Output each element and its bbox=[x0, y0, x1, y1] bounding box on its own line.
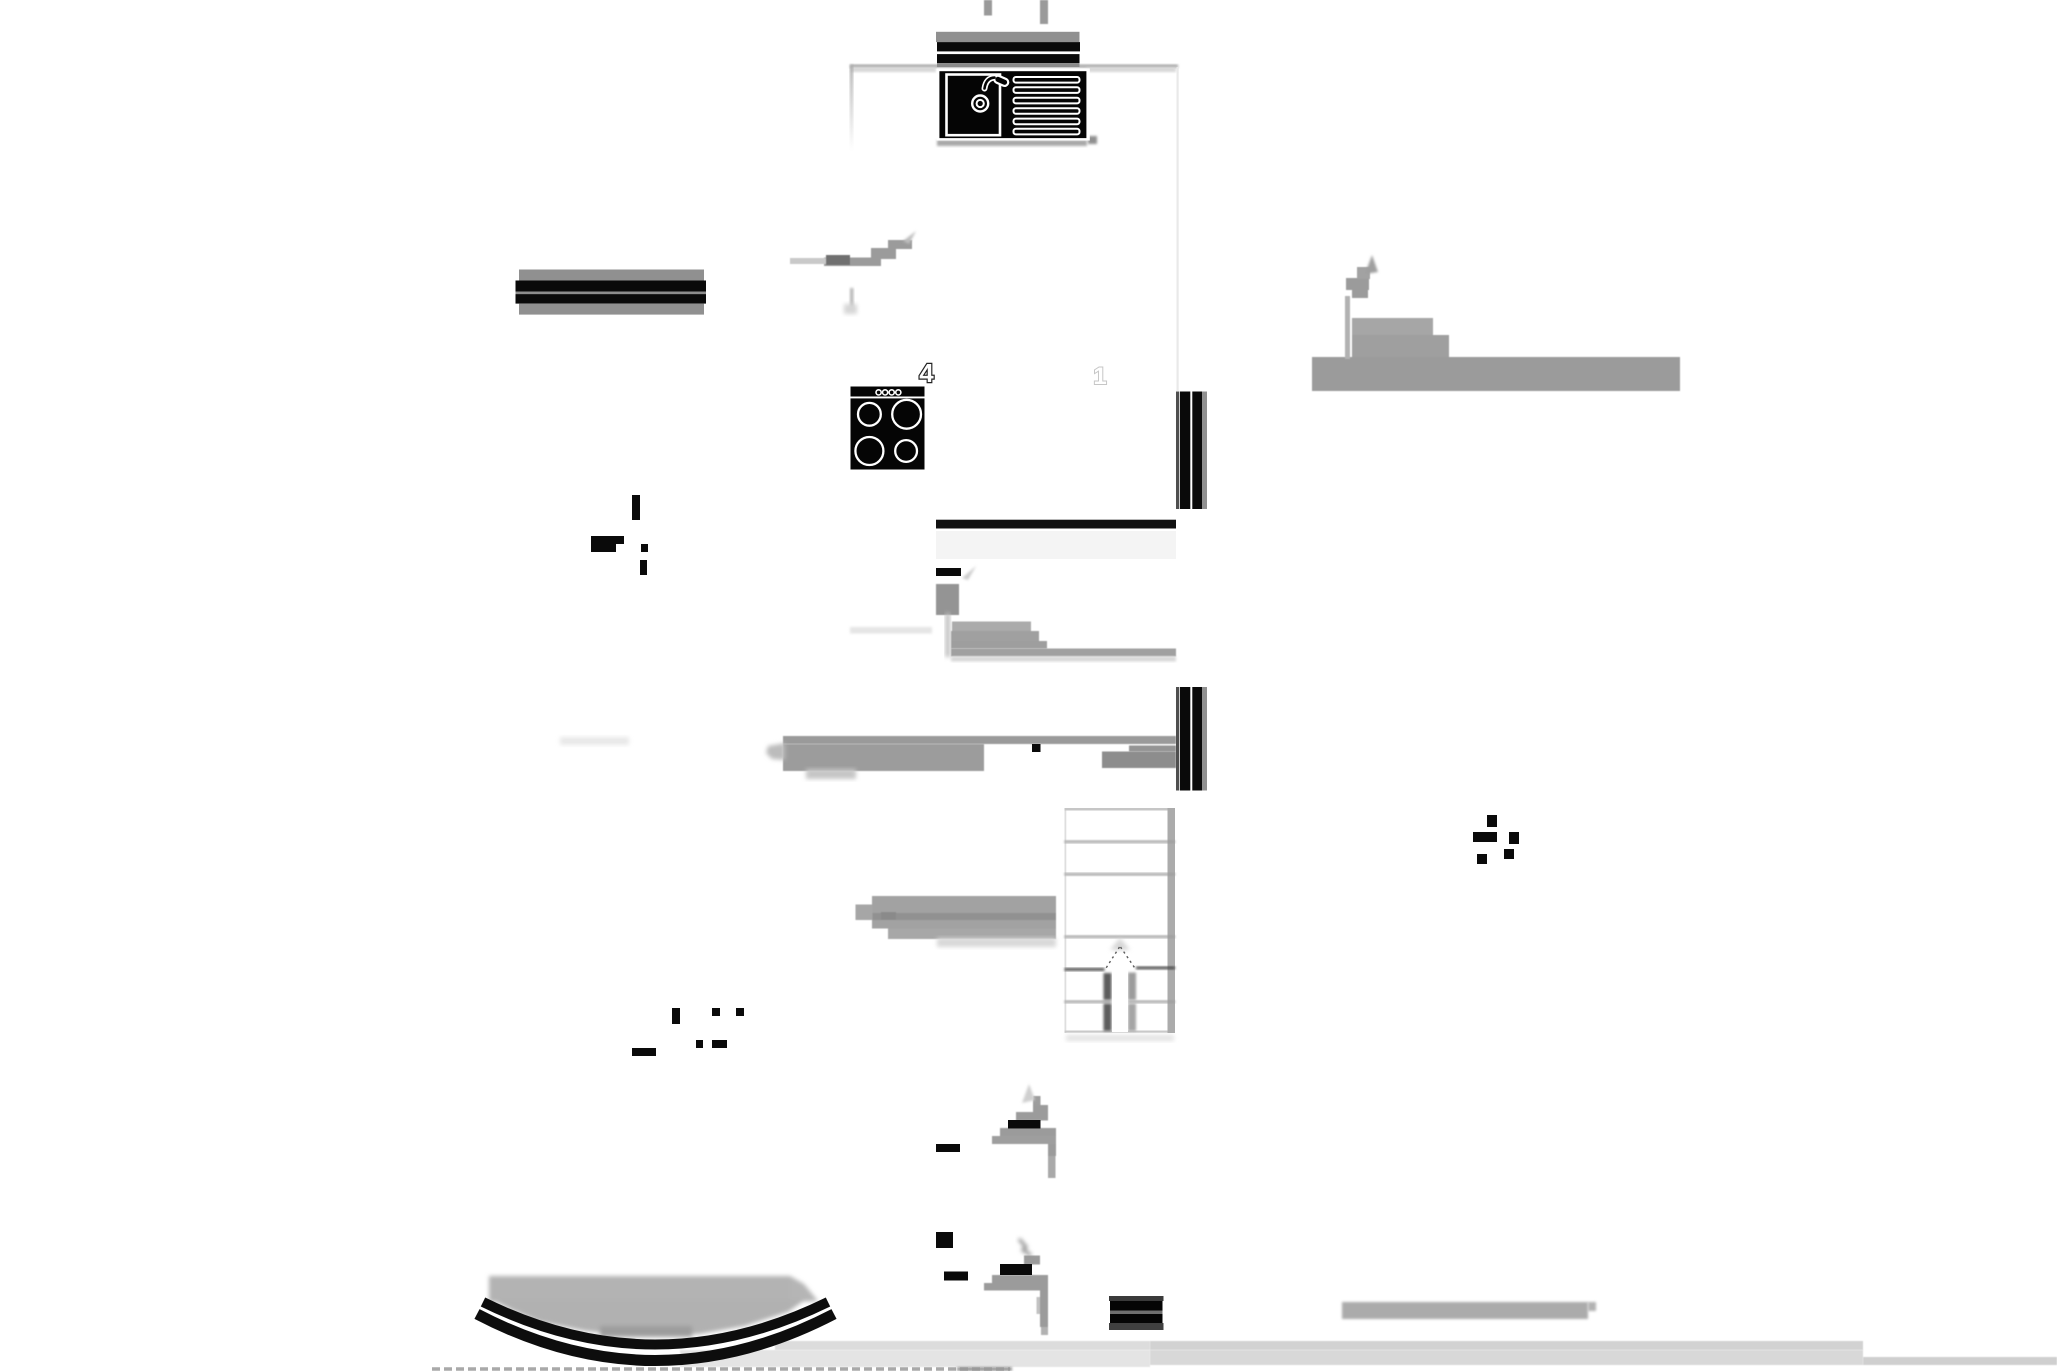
svg-text:4: 4 bbox=[919, 358, 934, 388]
svg-text:1: 1 bbox=[1093, 363, 1106, 390]
